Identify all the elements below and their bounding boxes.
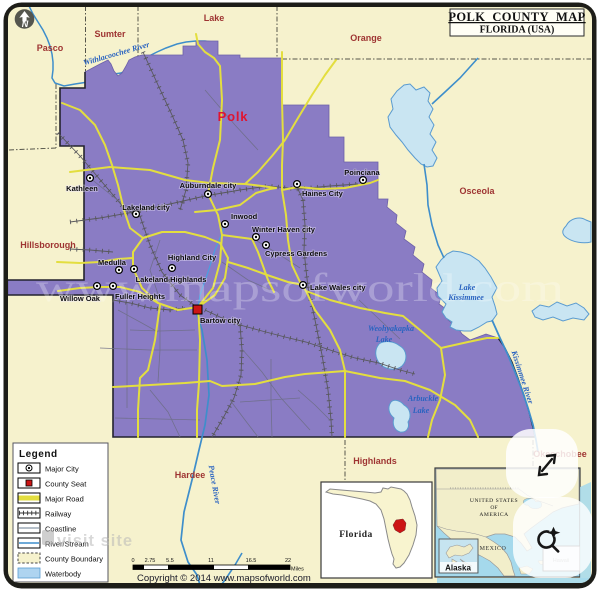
svg-text:Winter Haven city: Winter Haven city: [252, 225, 316, 234]
svg-text:Lake: Lake: [375, 335, 393, 344]
svg-text:Kissimmee: Kissimmee: [447, 293, 484, 302]
svg-text:Fuller Heights: Fuller Heights: [115, 292, 165, 301]
svg-text:Lakeland Highlands: Lakeland Highlands: [136, 275, 207, 284]
svg-text:Polk: Polk: [218, 109, 249, 124]
svg-text:Cypress Gardens: Cypress Gardens: [265, 249, 327, 258]
svg-text:Sumter: Sumter: [94, 29, 126, 39]
svg-text:Legend: Legend: [19, 449, 58, 460]
svg-text:Bartow city: Bartow city: [200, 316, 241, 325]
svg-text:Osceola: Osceola: [459, 186, 495, 196]
svg-text:County Boundary: County Boundary: [45, 555, 103, 564]
svg-text:Haines City: Haines City: [302, 189, 344, 198]
svg-text:Arbuckle: Arbuckle: [407, 394, 439, 403]
svg-text:2.75: 2.75: [145, 558, 156, 564]
svg-text:Weohyakapka: Weohyakapka: [368, 324, 414, 333]
svg-text:Major Road: Major Road: [45, 495, 84, 504]
svg-text:Highland City: Highland City: [168, 253, 217, 262]
svg-text:visit site: visit site: [57, 532, 133, 550]
svg-text:N: N: [22, 19, 29, 29]
svg-text:POLK COUNTY MAP: POLK COUNTY MAP: [448, 10, 585, 24]
svg-text:Lake: Lake: [458, 283, 476, 292]
svg-text:Railway: Railway: [45, 510, 72, 519]
svg-text:Lake: Lake: [412, 406, 430, 415]
svg-text:Hillsborough: Hillsborough: [20, 240, 76, 250]
svg-text:0: 0: [131, 558, 134, 564]
svg-text:Lake: Lake: [204, 13, 225, 23]
svg-text:Lakeland city: Lakeland city: [122, 203, 170, 212]
svg-text:AMERICA: AMERICA: [479, 512, 508, 518]
svg-text:Willow Oak: Willow Oak: [60, 294, 101, 303]
svg-text:Medulla: Medulla: [98, 258, 127, 267]
svg-text:County Seat: County Seat: [45, 480, 87, 489]
svg-text:Miles: Miles: [291, 567, 304, 573]
svg-text:Auburndale city: Auburndale city: [180, 181, 238, 190]
svg-text:22: 22: [285, 558, 291, 564]
svg-text:OF: OF: [490, 505, 497, 511]
svg-text:UNITED STATES: UNITED STATES: [470, 498, 518, 504]
svg-text:Major City: Major City: [45, 465, 79, 474]
svg-text:Waterbody: Waterbody: [45, 570, 81, 579]
svg-text:Pasco: Pasco: [37, 43, 64, 53]
svg-text:Hardee: Hardee: [175, 470, 206, 480]
svg-text:11: 11: [208, 558, 214, 564]
svg-text:Poinciana: Poinciana: [344, 168, 380, 177]
svg-text:FLORIDA (USA): FLORIDA (USA): [480, 25, 555, 36]
svg-text:5.5: 5.5: [166, 558, 174, 564]
svg-text:Inwood: Inwood: [231, 212, 258, 221]
svg-text:Orange: Orange: [350, 33, 382, 43]
svg-text:MEXICO: MEXICO: [480, 546, 507, 552]
svg-text:Alaska: Alaska: [445, 564, 471, 573]
svg-text:Lake Wales city: Lake Wales city: [310, 283, 366, 292]
svg-text:Copyright © 2014 www.mapsofwor: Copyright © 2014 www.mapsofworld.com: [137, 573, 311, 584]
svg-text:Florida: Florida: [339, 530, 373, 540]
svg-text:Kathleen: Kathleen: [66, 184, 98, 193]
svg-text:16.5: 16.5: [246, 558, 257, 564]
svg-text:Highlands: Highlands: [353, 456, 397, 466]
